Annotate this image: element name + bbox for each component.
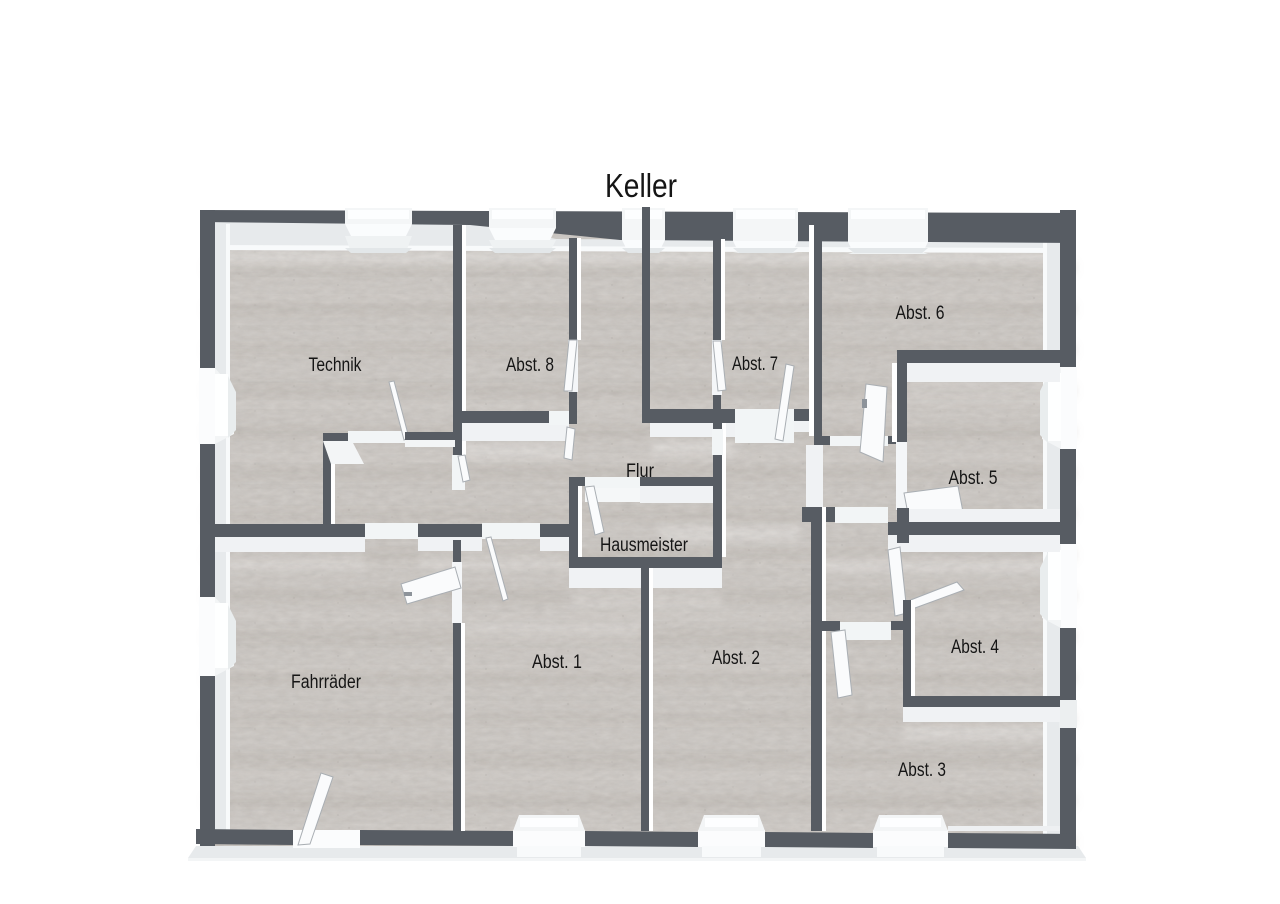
svg-text:Flur: Flur xyxy=(626,461,655,482)
svg-text:Keller: Keller xyxy=(605,167,677,204)
svg-text:Hausmeister: Hausmeister xyxy=(600,535,689,556)
svg-text:Abst. 6: Abst. 6 xyxy=(896,303,945,324)
svg-text:Abst. 4: Abst. 4 xyxy=(951,637,999,658)
svg-text:Abst. 1: Abst. 1 xyxy=(532,652,582,673)
svg-text:Abst. 2: Abst. 2 xyxy=(712,648,760,669)
svg-text:Abst. 5: Abst. 5 xyxy=(949,468,998,489)
svg-text:Abst. 3: Abst. 3 xyxy=(898,760,946,781)
svg-text:Abst. 7: Abst. 7 xyxy=(732,354,778,375)
svg-text:Abst. 8: Abst. 8 xyxy=(506,355,554,376)
svg-text:Technik: Technik xyxy=(309,355,362,376)
svg-text:Fahrräder: Fahrräder xyxy=(291,672,362,693)
